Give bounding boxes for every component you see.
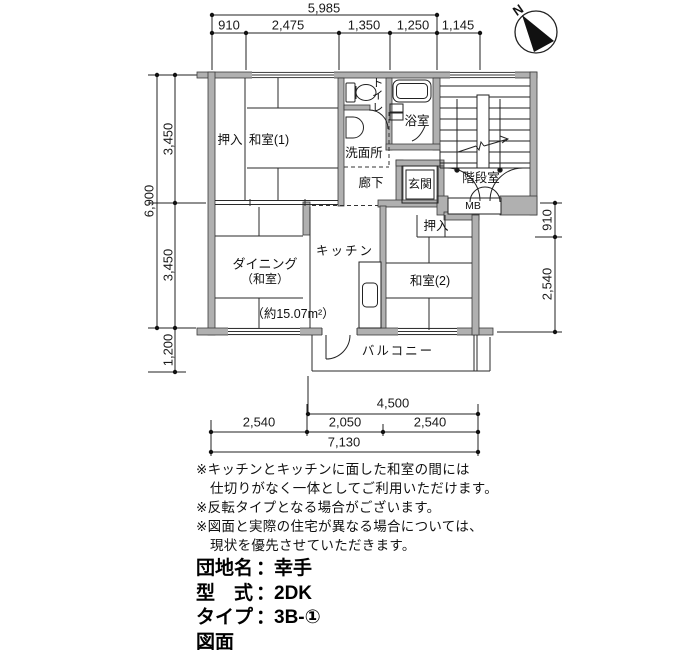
info-colon: ： <box>256 606 274 631</box>
dim-left-balcony: 1,200 <box>162 334 175 367</box>
dim-bottom-left: 2,540 <box>243 416 276 429</box>
note-line: 仕切りがなく一体としてご利用いただけます。 <box>196 479 498 498</box>
sink-icon <box>346 117 364 138</box>
room-label-balcony: バルコニー <box>362 345 434 358</box>
room-label-closet-top: 押入 <box>217 134 242 147</box>
floorplan-document: 5,985 910 2,475 1,350 1,250 1,145 6,900 … <box>0 0 700 650</box>
dim-bottom-middle: 2,050 <box>329 416 362 429</box>
dim-top-seg2: 2,475 <box>272 19 305 32</box>
room-label-washitsu1: 和室(1) <box>249 134 289 147</box>
room-label-entrance: 玄関 <box>408 178 432 190</box>
note-line: 現状を優先させていただきます。 <box>196 536 498 555</box>
stairs-icon <box>440 86 530 172</box>
info-label: 図面No <box>196 631 256 650</box>
room-label-washroom: 洗面所 <box>345 147 383 160</box>
compass-icon <box>515 11 557 53</box>
room-label-washitsu2: 和室(2) <box>410 275 450 288</box>
info-value: 幸手 <box>274 558 312 579</box>
note-line: ※図面と実際の住宅が異なる場合については、 <box>196 517 498 536</box>
dim-right-upper: 910 <box>541 209 554 231</box>
note-line: ※キッチンとキッチンに面した和室の間には <box>196 460 498 479</box>
info-row-type: 型 式：2DK <box>196 582 327 607</box>
dim-top-seg4: 1,250 <box>397 19 430 32</box>
partitions-tatami <box>215 78 490 371</box>
info-value: 3B-① <box>274 607 321 628</box>
dim-left-upper: 3,450 <box>162 123 175 156</box>
room-label-closet-right: 押入 <box>423 220 448 233</box>
balcony-door-arc <box>326 335 350 359</box>
info-row-drawing-no: 図面No：50152 <box>196 631 327 650</box>
dim-left-total: 6,900 <box>143 185 156 218</box>
dim-left-lower: 3,450 <box>162 249 175 282</box>
dim-right-lower: 2,540 <box>541 268 554 301</box>
dim-top-seg1: 910 <box>218 19 240 32</box>
note-line: ※反転タイプとなる場合がございます。 <box>196 498 498 517</box>
room-label-bath: 浴室 <box>404 115 429 128</box>
dim-top-total: 5,985 <box>308 2 341 15</box>
room-label-meter-box: MB <box>465 201 481 212</box>
property-info-block: 団地名：幸手 型 式：2DK タイプ：3B-① 図面No：50152 <box>196 557 327 650</box>
stair-up-arrow <box>458 146 476 152</box>
info-colon: ： <box>256 582 274 607</box>
dim-top-seg5: 1,145 <box>442 19 475 32</box>
room-label-kitchen: キッチン <box>316 245 374 258</box>
kitchen-counter <box>359 262 381 328</box>
dim-top-seg3: 1,350 <box>348 19 381 32</box>
area-note: （約15.07m²） <box>251 308 334 321</box>
dim-bottom-balcony: 4,500 <box>377 397 410 410</box>
info-colon: ： <box>256 557 274 582</box>
room-label-dining-sub: （和室） <box>241 273 289 285</box>
bath-label-leader <box>412 126 425 141</box>
info-label: タイプ <box>196 606 256 631</box>
info-label: 型 式 <box>196 582 256 607</box>
room-label-corridor: 廊下 <box>358 177 383 190</box>
notes-block: ※キッチンとキッチンに面した和室の間には 仕切りがなく一体としてご利用いただけま… <box>196 460 498 555</box>
info-row-plan-type: タイプ：3B-① <box>196 606 327 631</box>
dim-bottom-total: 7,130 <box>328 436 361 449</box>
info-label: 団地名 <box>196 557 256 582</box>
room-label-toilet: トイレ <box>370 76 382 114</box>
room-label-stairwell: 階段室 <box>462 172 500 185</box>
info-row-danchi: 団地名：幸手 <box>196 557 327 582</box>
room-label-dining: ダイニング <box>232 258 297 271</box>
dim-bottom-right: 2,540 <box>414 416 447 429</box>
info-value: 2DK <box>274 583 312 604</box>
floorplan-linework <box>0 0 700 460</box>
